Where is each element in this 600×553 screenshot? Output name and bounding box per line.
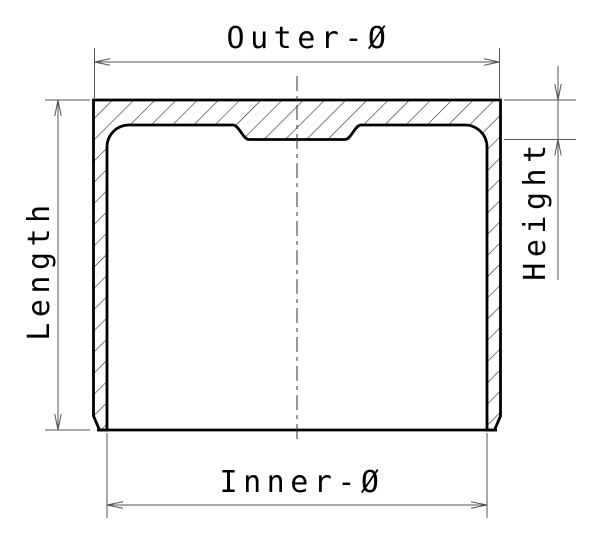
height-dimension: Height: [504, 66, 576, 281]
length-label: Length: [22, 199, 57, 340]
height-label: Height: [518, 139, 553, 280]
inner-diameter-label: Inner-Ø: [220, 465, 385, 500]
technical-drawing: Outer-Ø Length Height Inner-Ø: [0, 0, 600, 553]
technical-drawing-canvas: Outer-Ø Length Height Inner-Ø: [0, 0, 600, 553]
outer-diameter-label: Outer-Ø: [227, 21, 392, 56]
length-dimension: Length: [22, 100, 90, 430]
inner-diameter-dimension: Inner-Ø: [107, 433, 487, 518]
